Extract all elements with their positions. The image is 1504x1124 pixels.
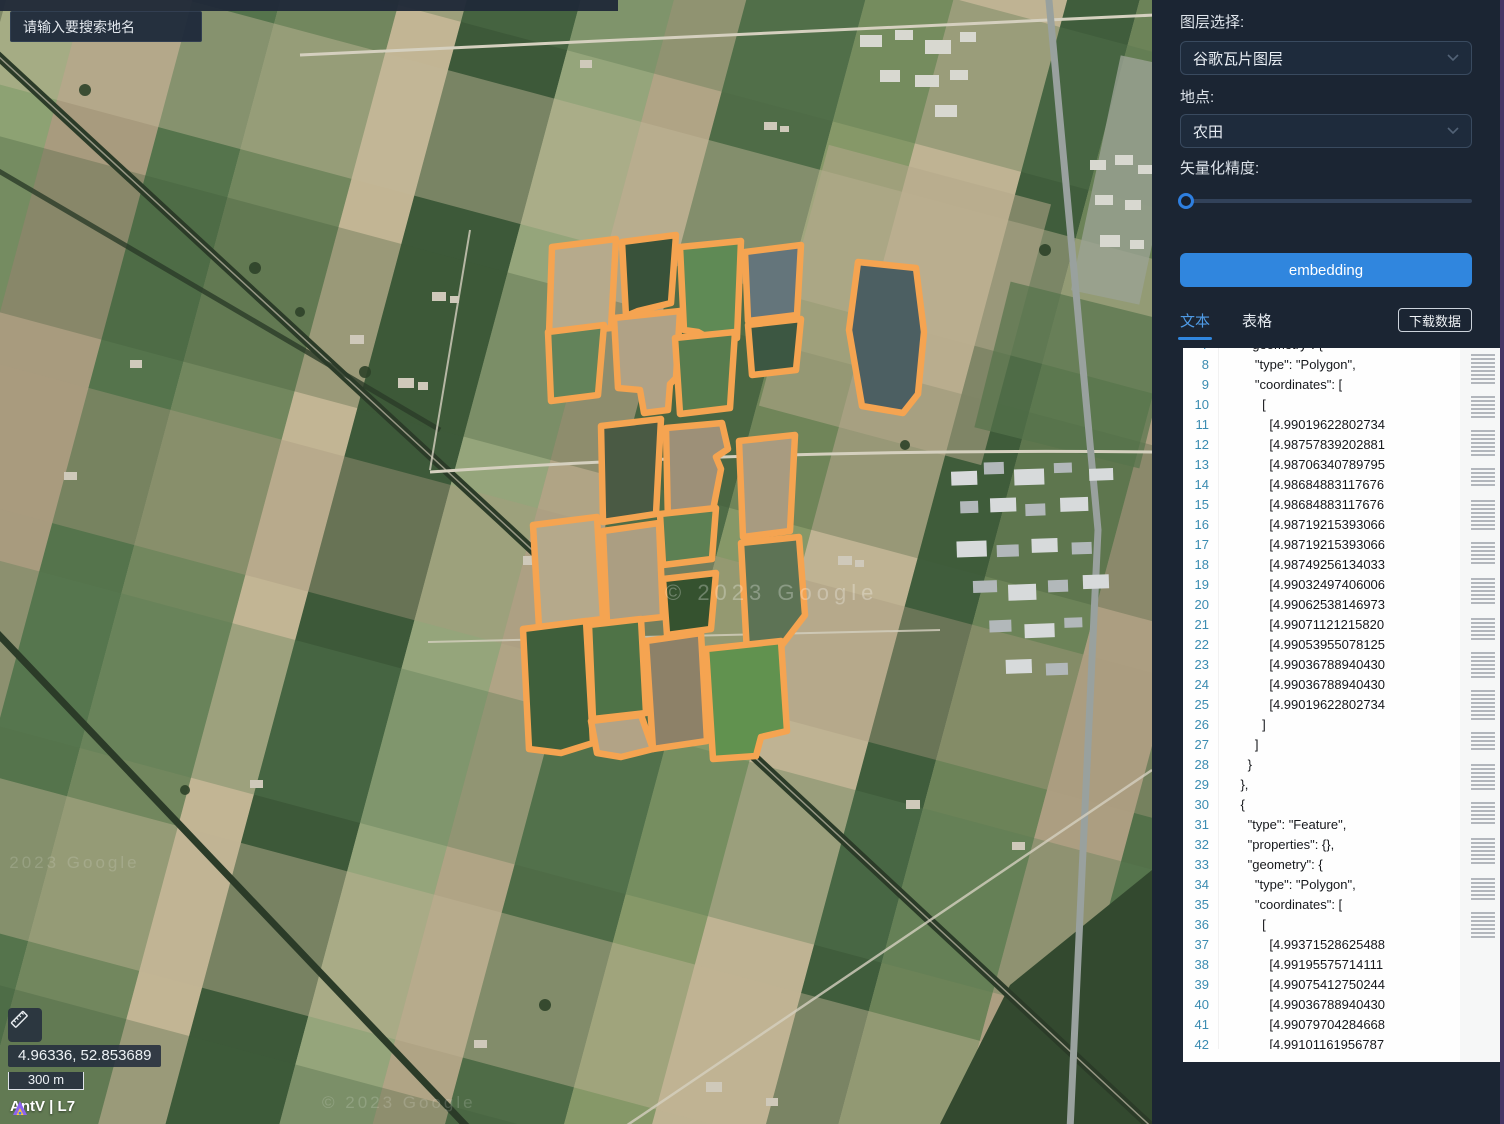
code-line: 14 [4.98684883117676: [1183, 475, 1460, 495]
code-line: 42 [4.99101161956787: [1183, 1035, 1460, 1049]
map-container[interactable]: © 2023 Google © 2023 Google © 2023 Googl…: [0, 0, 1152, 1124]
precision-label: 矢量化精度:: [1180, 158, 1472, 179]
code-line: 12 [4.98757839202881: [1183, 435, 1460, 455]
field-polygon: [745, 245, 801, 321]
tab-table[interactable]: 表格: [1242, 310, 1272, 331]
map-attribution: AntV | L7: [10, 1098, 75, 1115]
field-polygon: [591, 715, 653, 757]
code-lines[interactable]: 7 "geometry": {8 "type": "Polygon",9 "co…: [1183, 348, 1460, 1049]
code-line: 41 [4.99079704284668: [1183, 1015, 1460, 1035]
minimap-block: [1471, 430, 1495, 456]
code-line: 40 [4.99036788940430: [1183, 995, 1460, 1015]
layer-select[interactable]: 谷歌瓦片图层: [1180, 41, 1472, 75]
code-line: 13 [4.98706340789795: [1183, 455, 1460, 475]
chevron-down-icon: [1447, 54, 1459, 62]
code-line: 28 }: [1183, 755, 1460, 775]
minimap-block: [1471, 500, 1495, 530]
satellite-map[interactable]: © 2023 Google © 2023 Google © 2023 Googl…: [0, 0, 1152, 1124]
code-line: 38 [4.99195575714111: [1183, 955, 1460, 975]
code-line: 19 [4.99032497406006: [1183, 575, 1460, 595]
layer-label: 图层选择:: [1180, 12, 1472, 33]
code-editor[interactable]: 7 "geometry": {8 "type": "Polygon",9 "co…: [1183, 348, 1500, 1062]
code-line: 22 [4.99053955078125: [1183, 635, 1460, 655]
tab-text[interactable]: 文本: [1180, 310, 1210, 331]
minimap-block: [1471, 652, 1495, 678]
field-polygon: [675, 332, 735, 414]
google-watermark: © 2023 Google: [0, 853, 140, 872]
minimap-block: [1471, 732, 1495, 752]
layer-select-value: 谷歌瓦片图层: [1193, 48, 1283, 69]
code-line: 36 [: [1183, 915, 1460, 935]
antv-logo: [10, 1098, 30, 1118]
code-line: 23 [4.99036788940430: [1183, 655, 1460, 675]
code-line: 26 ]: [1183, 715, 1460, 735]
minimap-block: [1471, 468, 1495, 488]
code-line: 25 [4.99019622802734: [1183, 695, 1460, 715]
slider-handle[interactable]: [1178, 193, 1194, 209]
field-polygon: [533, 517, 603, 627]
code-line: 39 [4.99075412750244: [1183, 975, 1460, 995]
code-line: 18 [4.98749256134033: [1183, 555, 1460, 575]
code-line: 27 ]: [1183, 735, 1460, 755]
minimap-block: [1471, 354, 1495, 384]
field-polygon: [601, 419, 661, 522]
coordinates-display: 4.96336, 52.853689: [8, 1045, 161, 1067]
embedding-button[interactable]: embedding: [1180, 253, 1472, 287]
editor-minimap[interactable]: [1460, 348, 1500, 1062]
code-line: 24 [4.99036788940430: [1183, 675, 1460, 695]
code-line: 21 [4.99071121215820: [1183, 615, 1460, 635]
code-line: 9 "coordinates": [: [1183, 375, 1460, 395]
header-sliver: [0, 0, 618, 11]
minimap-block: [1471, 578, 1495, 606]
code-line: 37 [4.99371528625488: [1183, 935, 1460, 955]
measure-tool-button[interactable]: [8, 1008, 42, 1042]
code-line: 20 [4.99062538146973: [1183, 595, 1460, 615]
code-line: 35 "coordinates": [: [1183, 895, 1460, 915]
place-label: 地点:: [1180, 87, 1472, 108]
slider-track[interactable]: [1180, 199, 1472, 203]
google-watermark: © 2023 Google: [665, 580, 878, 605]
minimap-block: [1471, 802, 1495, 826]
code-line: 8 "type": "Polygon",: [1183, 355, 1460, 375]
field-polygon: [549, 239, 616, 334]
google-watermark: © 2023 Google: [322, 1093, 476, 1112]
code-line: 11 [4.99019622802734: [1183, 415, 1460, 435]
code-line: 29 },: [1183, 775, 1460, 795]
code-line: 34 "type": "Polygon",: [1183, 875, 1460, 895]
minimap-block: [1471, 542, 1495, 566]
code-line: 7 "geometry": {: [1183, 348, 1460, 355]
code-line: 33 "geometry": {: [1183, 855, 1460, 875]
place-select-value: 农田: [1193, 121, 1223, 142]
search-input[interactable]: [10, 11, 202, 42]
field-polygon: [603, 523, 663, 623]
code-line: 30 {: [1183, 795, 1460, 815]
minimap-block: [1471, 764, 1495, 790]
minimap-block: [1471, 618, 1495, 640]
field-polygon: [589, 619, 646, 719]
field-polygon: [748, 319, 801, 375]
field-polygon: [646, 633, 707, 749]
control-panel: 图层选择: 谷歌瓦片图层 地点: 农田 矢量化精度: embedding: [1152, 0, 1504, 1124]
field-polygon: [739, 435, 795, 537]
tabs-bar: 文本 表格 下载数据: [1180, 307, 1472, 333]
field-polygon: [680, 241, 741, 342]
app: © 2023 Google © 2023 Google © 2023 Googl…: [0, 0, 1504, 1124]
field-polygon: [622, 235, 676, 316]
code-line: 15 [4.98684883117676: [1183, 495, 1460, 515]
scale-control: 300 m: [8, 1072, 84, 1090]
download-data-button[interactable]: 下载数据: [1398, 308, 1472, 332]
minimap-block: [1471, 878, 1495, 900]
place-select[interactable]: 农田: [1180, 114, 1472, 148]
precision-slider[interactable]: [1180, 191, 1472, 211]
minimap-block: [1471, 838, 1495, 866]
code-line: 10 [: [1183, 395, 1460, 415]
code-line: 16 [4.98719215393066: [1183, 515, 1460, 535]
chevron-down-icon: [1447, 127, 1459, 135]
field-polygon: [849, 262, 924, 413]
minimap-block: [1471, 912, 1495, 938]
ruler-icon: [8, 1008, 30, 1030]
field-polygon: [660, 508, 716, 565]
code-line: 31 "type": "Feature",: [1183, 815, 1460, 835]
code-line: 17 [4.98719215393066: [1183, 535, 1460, 555]
field-polygon: [523, 621, 593, 753]
code-line: 32 "properties": {},: [1183, 835, 1460, 855]
minimap-block: [1471, 690, 1495, 720]
minimap-block: [1471, 396, 1495, 418]
field-polygon: [548, 325, 604, 401]
